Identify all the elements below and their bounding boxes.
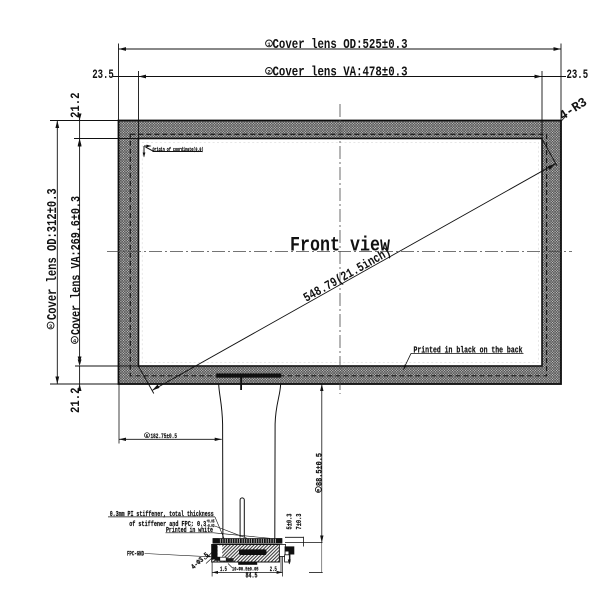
svg-text:23.5: 23.5	[567, 67, 589, 82]
svg-text:Origin of coordinate(0,0): Origin of coordinate(0,0)	[153, 146, 204, 153]
svg-text:Cover lens OD:525±0.3: Cover lens OD:525±0.3	[273, 37, 408, 53]
svg-text:1.5: 1.5	[220, 566, 227, 573]
svg-text:3: 3	[49, 323, 53, 330]
svg-text:182.75±0.5: 182.75±0.5	[151, 433, 178, 441]
svg-text:Front view: Front view	[290, 235, 390, 258]
svg-text:21.2: 21.2	[68, 92, 83, 118]
svg-text:Cover lens OD:312±0.3: Cover lens OD:312±0.3	[46, 188, 61, 320]
svg-text:2.5: 2.5	[270, 566, 277, 573]
svg-text:Printed in black on the back: Printed in black on the back	[414, 346, 523, 356]
svg-text:Cover lens VA:269.6±0.3: Cover lens VA:269.6±0.3	[69, 196, 84, 335]
svg-text:5±0.3: 5±0.3	[287, 513, 295, 529]
svg-text:FPC-GND: FPC-GND	[127, 550, 144, 557]
svg-text:6: 6	[317, 488, 320, 494]
svg-text:84.5: 84.5	[246, 572, 258, 580]
svg-text:10-Φ0.5±0.05: 10-Φ0.5±0.05	[232, 567, 259, 573]
svg-text:88.5±0.5: 88.5±0.5	[314, 453, 324, 486]
svg-text:23.5: 23.5	[92, 67, 114, 82]
svg-text:4-R3: 4-R3	[557, 95, 590, 124]
svg-text:1: 1	[267, 41, 271, 48]
svg-text:2: 2	[267, 69, 271, 76]
svg-text:0.3mm PI stiffener, total thic: 0.3mm PI stiffener, total thickness	[110, 511, 214, 519]
svg-text:Cover lens VA:478±0.3: Cover lens VA:478±0.3	[273, 65, 408, 81]
svg-text:4: 4	[73, 338, 77, 345]
svg-text:7±0.3: 7±0.3	[296, 513, 304, 529]
svg-text:Printed in white: Printed in white	[166, 527, 213, 535]
svg-text:21.2: 21.2	[68, 387, 83, 413]
